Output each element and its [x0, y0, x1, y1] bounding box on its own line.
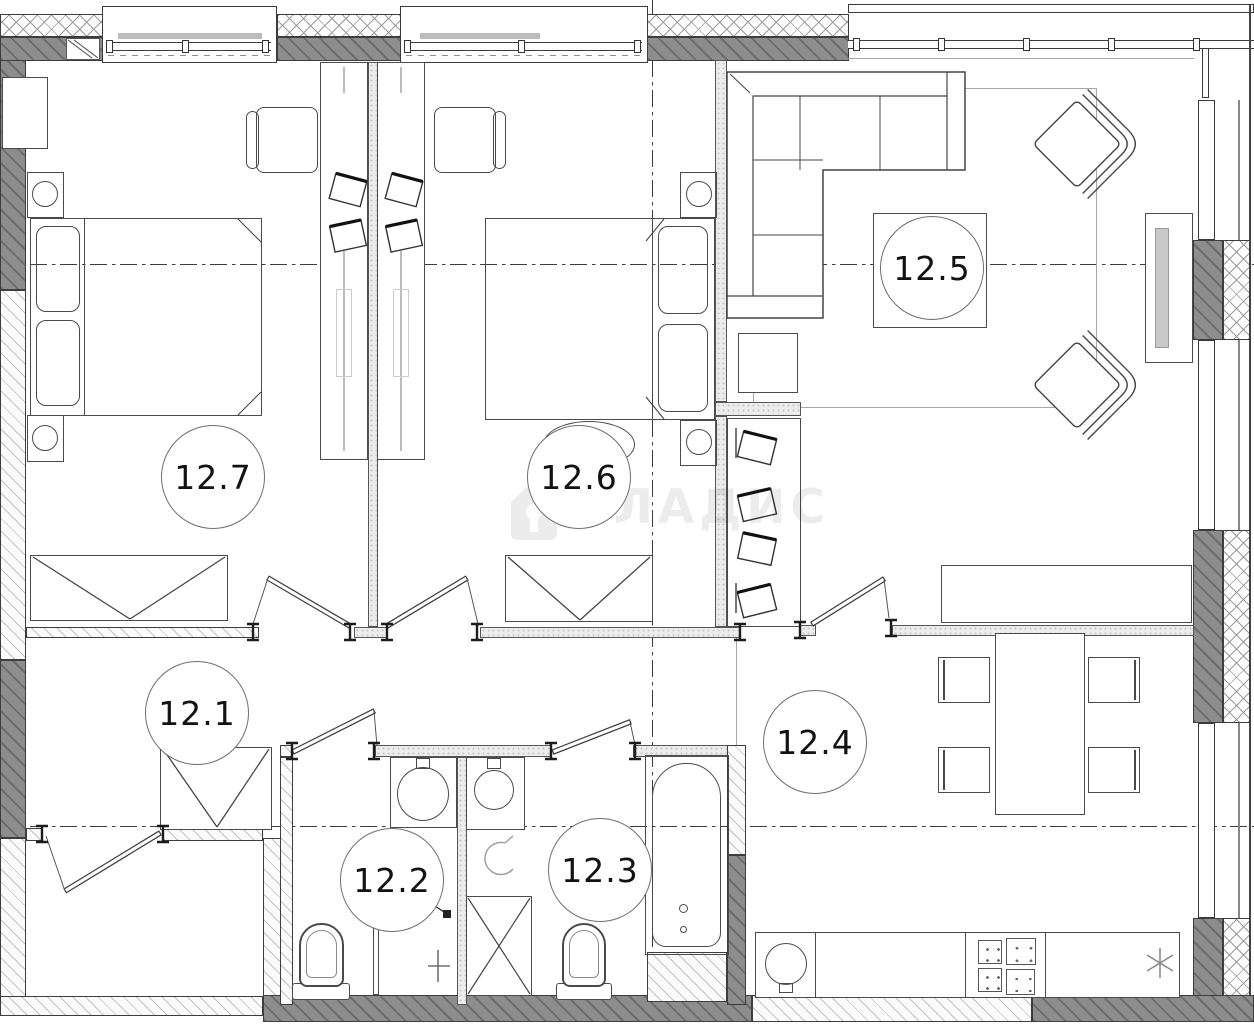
floor-drain-icon	[505, 836, 513, 843]
faucet-icon	[487, 758, 501, 769]
nightstand	[680, 420, 717, 466]
room-label-12-1: 12.1	[145, 661, 249, 765]
desk-chair-back	[246, 111, 259, 169]
bathroom-wall-right	[727, 745, 746, 855]
window-mullion	[1023, 38, 1030, 51]
kitchen-sink	[765, 943, 807, 985]
floor-line	[848, 58, 1194, 59]
wardrobe-tall	[377, 62, 425, 460]
chair-back-line	[1134, 660, 1136, 700]
leader-arrow	[443, 910, 451, 918]
pillow	[658, 324, 708, 412]
shelf-mark	[735, 428, 737, 458]
wall-bedroom-hall	[26, 627, 259, 638]
room-label-12-6: 12.6	[527, 425, 631, 529]
shoe-cabinet	[727, 418, 801, 627]
window-mullion	[938, 38, 945, 51]
wall-left-lower	[0, 838, 26, 998]
window-mullion	[634, 40, 641, 53]
double-bed	[485, 218, 715, 420]
room-label-12-4: 12.4	[763, 690, 867, 794]
door-leaf	[552, 720, 631, 754]
wall-top-insulation	[647, 14, 849, 37]
basin-bowl	[397, 767, 449, 821]
cabinet-divider	[815, 933, 816, 997]
washing-machine	[466, 896, 532, 996]
floor-plan: ВЛАДИС 12.1 12.2 12.3 12.4 12.5 12.6 12.…	[0, 0, 1254, 1024]
door-leaf	[386, 576, 468, 628]
balcony-parapet	[848, 4, 1254, 13]
toilet-bowl	[562, 923, 606, 987]
right-window-1	[1198, 100, 1215, 240]
armchair	[1033, 331, 1142, 440]
chair-back-line	[1134, 750, 1136, 790]
wardrobe	[30, 555, 228, 621]
dining-table	[995, 633, 1085, 815]
nightstand	[27, 415, 64, 462]
cabinet-divider	[965, 933, 966, 997]
outer-edge-line	[1249, 4, 1251, 1022]
room-label-text: 12.3	[561, 851, 638, 890]
window-mullion	[182, 40, 189, 53]
toilet-bowl	[299, 923, 344, 987]
door-leaf	[267, 576, 351, 628]
lamp-icon	[686, 429, 712, 455]
nightstand	[680, 172, 717, 218]
shelf-mark	[735, 583, 737, 613]
floor-line	[1096, 88, 1097, 408]
side-table	[738, 333, 798, 393]
floor-drain-icon	[485, 842, 513, 874]
wall-top-structural	[647, 37, 849, 61]
wall-step	[66, 38, 100, 60]
wall-bottom-partition	[752, 995, 1032, 1022]
window-sill-dash	[406, 55, 642, 56]
hanging-clothes	[336, 289, 352, 377]
door-swing	[374, 711, 377, 746]
window-mullion	[853, 38, 860, 51]
window-sill-dash	[108, 55, 271, 56]
window-mullion	[518, 40, 525, 53]
bathroom-wall	[375, 745, 552, 757]
kitchen-counter	[755, 932, 1180, 998]
door-leaf	[292, 709, 375, 754]
corridor-wall	[0, 996, 263, 1016]
cabinet-divider	[1045, 933, 1046, 997]
chair-back-line	[943, 750, 945, 790]
room-label-12-2: 12.2	[340, 828, 444, 932]
desk-chair-back	[493, 111, 506, 169]
door-leaf	[811, 577, 885, 626]
pillow	[36, 320, 80, 406]
window-mullion	[106, 40, 113, 53]
room-label-text: 12.2	[353, 861, 430, 900]
bathtub	[645, 755, 729, 955]
door-swing	[253, 578, 268, 624]
window-mullion	[404, 40, 411, 53]
wall-top-insulation	[277, 14, 401, 37]
sofa-corner-seam	[730, 74, 750, 93]
wardrobe	[505, 555, 653, 622]
window-glazing-1	[108, 42, 271, 51]
stove-burner	[1006, 969, 1035, 995]
hanging-clothes	[393, 289, 409, 377]
bathroom-wall-right	[727, 855, 746, 1005]
wall-bedroom-hall	[480, 627, 740, 638]
window-mullion	[1108, 38, 1115, 51]
bathroom-wall-left	[280, 757, 293, 1005]
room-label-text: 12.1	[158, 694, 235, 733]
balcony-divider	[1202, 48, 1209, 98]
drain-icon	[680, 926, 687, 933]
dining-chair	[1088, 657, 1140, 703]
door-swing	[884, 579, 889, 618]
wall-top-insulation	[0, 14, 103, 37]
stove-burner	[1006, 938, 1036, 965]
room-label-12-7: 12.7	[161, 425, 265, 529]
nightstand	[27, 172, 64, 218]
faucet-icon	[416, 758, 430, 769]
headboard-line	[84, 219, 85, 415]
dining-chair	[1088, 747, 1140, 793]
toilet-bowl-inner	[569, 930, 599, 978]
tv-stand	[1145, 213, 1193, 363]
wall-pier-insulation	[1223, 530, 1250, 723]
door-swing	[46, 836, 65, 891]
floor-line	[753, 407, 1097, 408]
wall-left-structural	[0, 660, 26, 838]
room-label-12-5: 12.5	[880, 216, 984, 320]
window-glass-line	[1238, 340, 1240, 530]
tv-icon	[1155, 228, 1169, 348]
wall-left-partition	[0, 290, 26, 660]
room-label-12-3: 12.3	[548, 818, 652, 922]
washbasin	[390, 757, 457, 828]
wall-pier-insulation	[1223, 240, 1250, 340]
wall-stub	[715, 402, 801, 416]
wall-bedroom-living	[715, 60, 727, 402]
window-glass-line	[1238, 723, 1240, 918]
basin-bowl	[474, 770, 514, 810]
stove-burner	[978, 968, 1002, 992]
wall-pier	[1193, 530, 1223, 723]
wall-bottom	[1032, 995, 1254, 1022]
headboard-line	[652, 219, 653, 419]
sideboard	[941, 565, 1192, 623]
drain-icon	[679, 904, 688, 913]
floor-line	[963, 88, 1096, 89]
right-window-2	[1198, 340, 1215, 530]
faucet-icon	[779, 983, 793, 993]
wardrobe-tall	[320, 62, 368, 460]
window-glass-line	[1238, 100, 1240, 240]
window-mullion	[262, 40, 269, 53]
chair-back-line	[943, 660, 945, 700]
desk-chair	[434, 107, 496, 173]
pillow	[36, 226, 80, 312]
wall-living-kitchen	[800, 625, 816, 636]
rail-mark	[343, 67, 345, 93]
entrance-door-leaf	[64, 831, 161, 893]
room-label-text: 12.6	[540, 458, 617, 497]
toilet-bowl-inner	[306, 930, 337, 978]
bathtub-inner	[652, 763, 721, 947]
entry-wall	[26, 828, 43, 841]
stove-burner	[978, 940, 1002, 964]
lamp-icon	[32, 181, 58, 207]
pilaster	[2, 77, 48, 149]
room-label-text: 12.4	[776, 723, 853, 762]
room-label-text: 12.7	[174, 458, 251, 497]
pillow	[658, 226, 708, 314]
armchair	[1033, 90, 1142, 199]
rail-mark	[400, 67, 402, 93]
window-shade	[420, 33, 540, 39]
lamp-icon	[32, 425, 58, 451]
washbasin	[466, 757, 525, 830]
desk-chair	[256, 107, 318, 173]
wall-pier	[1193, 240, 1223, 340]
dining-chair	[938, 747, 990, 793]
wall-bedroom-hall	[354, 627, 388, 638]
lamp-icon	[686, 181, 712, 207]
right-window-3	[1198, 723, 1215, 918]
window-mullion	[1193, 38, 1200, 51]
bathroom-wall	[280, 745, 293, 757]
dining-chair	[938, 657, 990, 703]
wall-top-structural	[277, 37, 401, 61]
room-label-text: 12.5	[893, 249, 970, 288]
door-swing	[467, 578, 478, 624]
duct-shaft	[647, 952, 727, 1002]
window-shade	[118, 33, 262, 39]
double-bed	[30, 218, 262, 416]
